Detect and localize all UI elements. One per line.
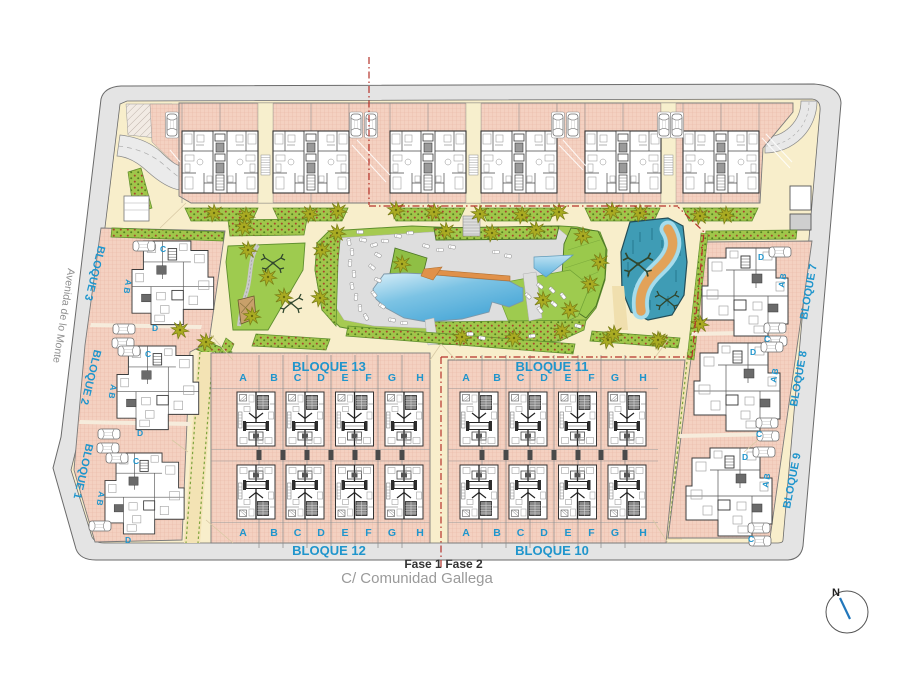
- svg-text:G: G: [388, 372, 396, 384]
- svg-text:C: C: [748, 534, 754, 544]
- svg-text:A: A: [239, 372, 247, 384]
- svg-text:BLOQUE 11: BLOQUE 11: [516, 359, 589, 374]
- svg-text:E: E: [564, 527, 571, 539]
- svg-text:C: C: [145, 349, 151, 359]
- svg-text:G: G: [611, 372, 619, 384]
- svg-text:D: D: [540, 527, 548, 539]
- svg-text:A: A: [462, 372, 470, 384]
- svg-text:B: B: [493, 527, 501, 539]
- svg-text:C/ Comunidad Gallega: C/ Comunidad Gallega: [341, 570, 493, 587]
- svg-text:D: D: [742, 452, 748, 462]
- svg-text:H: H: [639, 527, 647, 539]
- svg-text:BLOQUE 10: BLOQUE 10: [515, 543, 589, 558]
- svg-text:H: H: [416, 527, 424, 539]
- svg-text:B: B: [270, 372, 278, 384]
- svg-text:E: E: [341, 527, 348, 539]
- svg-text:C: C: [160, 244, 166, 254]
- svg-text:F: F: [365, 527, 372, 539]
- svg-text:D: D: [758, 252, 764, 262]
- svg-text:G: G: [611, 527, 619, 539]
- svg-text:F: F: [588, 527, 595, 539]
- svg-text:BLOQUE 12: BLOQUE 12: [292, 543, 366, 558]
- svg-text:C: C: [133, 456, 139, 466]
- svg-text:A: A: [462, 527, 470, 539]
- svg-text:B: B: [270, 527, 278, 539]
- svg-text:H: H: [416, 372, 424, 384]
- svg-text:F: F: [365, 372, 372, 384]
- svg-text:Fase 1: Fase 1: [404, 557, 442, 571]
- svg-text:G: G: [388, 527, 396, 539]
- svg-text:F: F: [588, 372, 595, 384]
- svg-text:Fase 2: Fase 2: [445, 557, 483, 571]
- svg-text:D: D: [750, 347, 756, 357]
- svg-text:BLOQUE 13: BLOQUE 13: [292, 359, 366, 374]
- svg-text:C: C: [294, 527, 302, 539]
- svg-text:C: C: [756, 429, 762, 439]
- svg-text:B: B: [493, 372, 501, 384]
- svg-text:D: D: [152, 323, 158, 333]
- svg-text:D: D: [317, 527, 325, 539]
- svg-text:C: C: [517, 527, 525, 539]
- svg-text:D: D: [125, 535, 131, 545]
- svg-text:D: D: [137, 428, 143, 438]
- svg-text:A: A: [239, 527, 247, 539]
- svg-text:H: H: [639, 372, 647, 384]
- svg-text:N: N: [832, 587, 840, 599]
